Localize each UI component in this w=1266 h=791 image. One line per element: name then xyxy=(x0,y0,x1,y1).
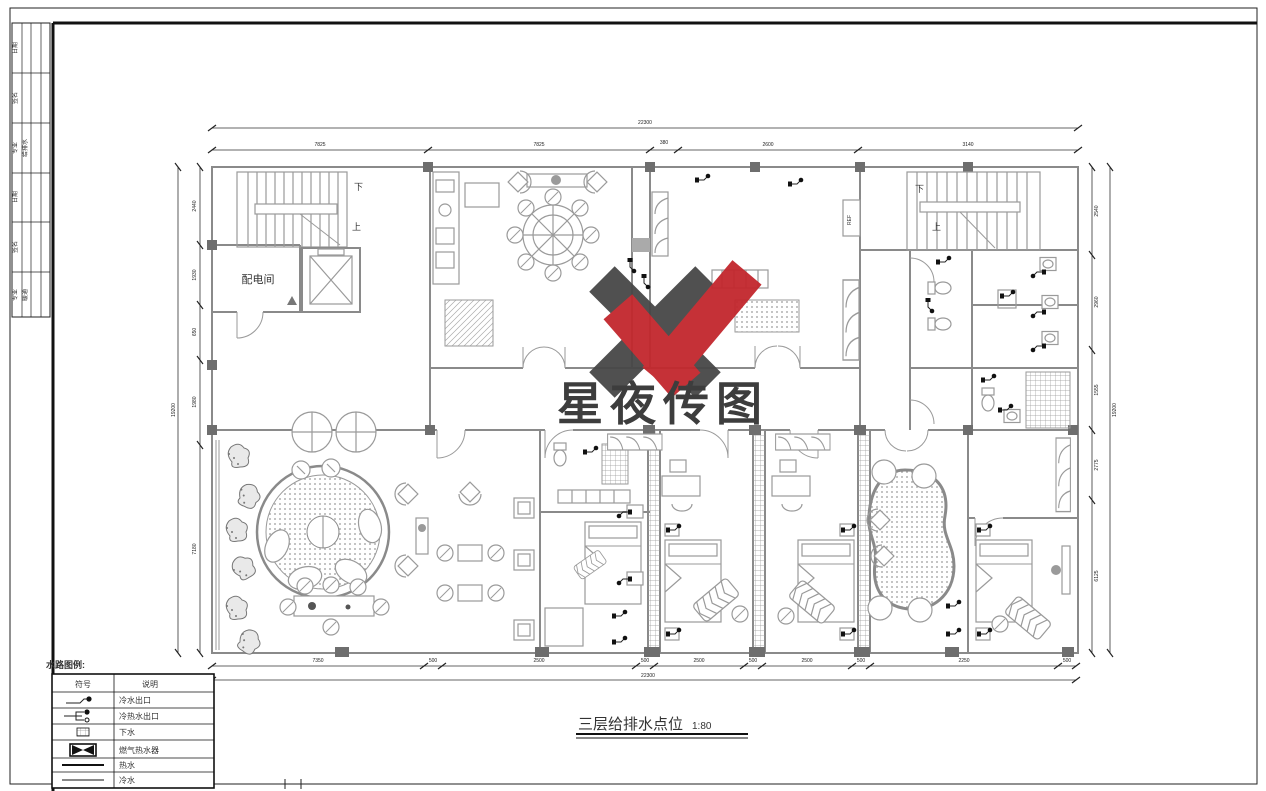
title-block: 日期 签名 专业 给排水 日期 签名 专业 暖通 xyxy=(11,23,50,317)
dim-label: 500 xyxy=(1063,658,1072,664)
dim-label: 500 xyxy=(429,658,438,664)
dim-label: 7350 xyxy=(312,658,323,664)
dim-bottom-total: 22300 xyxy=(641,673,655,679)
dim-label: 6125 xyxy=(1094,570,1100,581)
legend-heading: 水路图例: xyxy=(46,659,85,670)
stair-down-label: 下 xyxy=(354,182,363,192)
dim-label: 2540 xyxy=(1094,205,1100,216)
floor-drain-icon xyxy=(77,728,89,736)
lounge-room xyxy=(437,482,534,640)
dim-label: 1980 xyxy=(192,396,198,407)
tb-row-label: 日期 xyxy=(11,191,19,203)
dim-label: 2500 xyxy=(533,658,544,664)
dim-label: 2440 xyxy=(192,200,198,211)
dim-label: 7180 xyxy=(192,543,198,554)
bathrooms xyxy=(926,256,1071,428)
tb-stamp: 暖通 xyxy=(21,289,29,301)
dim-label: 500 xyxy=(641,658,650,664)
stair-up-label: 上 xyxy=(352,222,361,232)
dim-top-total: 22300 xyxy=(638,120,652,126)
water-legend: 水路图例: 符号 说明 冷水出口 冷热水出口 下水 燃气热水器 热水 冷水 xyxy=(46,659,214,788)
legend-row-label: 冷水出口 xyxy=(119,695,151,705)
dim-label: 2500 xyxy=(693,658,704,664)
tb-row-label: 专业 xyxy=(11,142,19,154)
legend-row-label: 下水 xyxy=(119,727,135,737)
tb-row-label: 签名 xyxy=(11,241,19,253)
bedroom-1 xyxy=(545,443,643,646)
stair-right: 下 上 xyxy=(907,172,1040,250)
drawing-title-text: 三层给排水点位 xyxy=(578,716,683,733)
stair-up-label: 上 xyxy=(932,222,941,232)
fridge-label: REF xyxy=(847,215,853,225)
power-room-label: 配电间 xyxy=(242,273,275,286)
legend-col-desc: 说明 xyxy=(142,679,158,689)
stair-down-label: 下 xyxy=(915,184,924,194)
master-room xyxy=(976,438,1070,641)
dining-kitchen xyxy=(433,171,607,346)
dim-label: 500 xyxy=(749,658,758,664)
stair-left: 下 上 xyxy=(237,172,363,247)
dim-label: 2500 xyxy=(801,658,812,664)
watermark: 星夜传图 xyxy=(557,260,769,430)
dim-label: 500 xyxy=(857,658,866,664)
dim-label: 380 xyxy=(660,140,669,146)
dim-label: 7825 xyxy=(314,142,325,148)
legend-row-label: 冷热水出口 xyxy=(119,711,159,721)
dim-label: 2600 xyxy=(762,142,773,148)
dim-label: 1555 xyxy=(1094,384,1100,395)
legend-row-label: 燃气热水器 xyxy=(119,745,159,755)
tb-row-label: 专业 xyxy=(11,289,19,301)
guest-room-right xyxy=(772,434,856,640)
drawing-scale: 1:80 xyxy=(692,721,712,732)
dim-label: 2250 xyxy=(958,658,969,664)
legend-row-label: 热水 xyxy=(119,760,135,770)
legend-row-label: 冷水 xyxy=(119,775,135,785)
tb-stamp: 给排水 xyxy=(21,139,29,157)
floor-plan-drawing: 日期 签名 专业 给排水 日期 签名 专业 暖通 22300 7825 7825… xyxy=(0,0,1266,791)
dim-label: 3140 xyxy=(962,142,973,148)
drawing-sheet: 日期 签名 专业 给排水 日期 签名 专业 暖通 22300 7825 7825… xyxy=(0,0,1266,791)
dim-left-total: 19200 xyxy=(171,403,177,417)
garden-room xyxy=(226,412,428,657)
legend-col-symbol: 符号 xyxy=(75,679,91,689)
dim-label: 7825 xyxy=(533,142,544,148)
dim-label: 650 xyxy=(192,328,198,337)
drawing-title: 三层给排水点位 1:80 xyxy=(576,716,748,738)
dim-label: 2960 xyxy=(1094,296,1100,307)
tb-row-label: 日期 xyxy=(11,42,19,54)
watermark-text: 星夜传图 xyxy=(557,378,769,430)
dim-label: 2775 xyxy=(1094,459,1100,470)
dim-right-total: 19200 xyxy=(1112,403,1118,417)
tb-row-label: 签名 xyxy=(11,92,19,104)
dim-label: 1930 xyxy=(192,269,198,280)
